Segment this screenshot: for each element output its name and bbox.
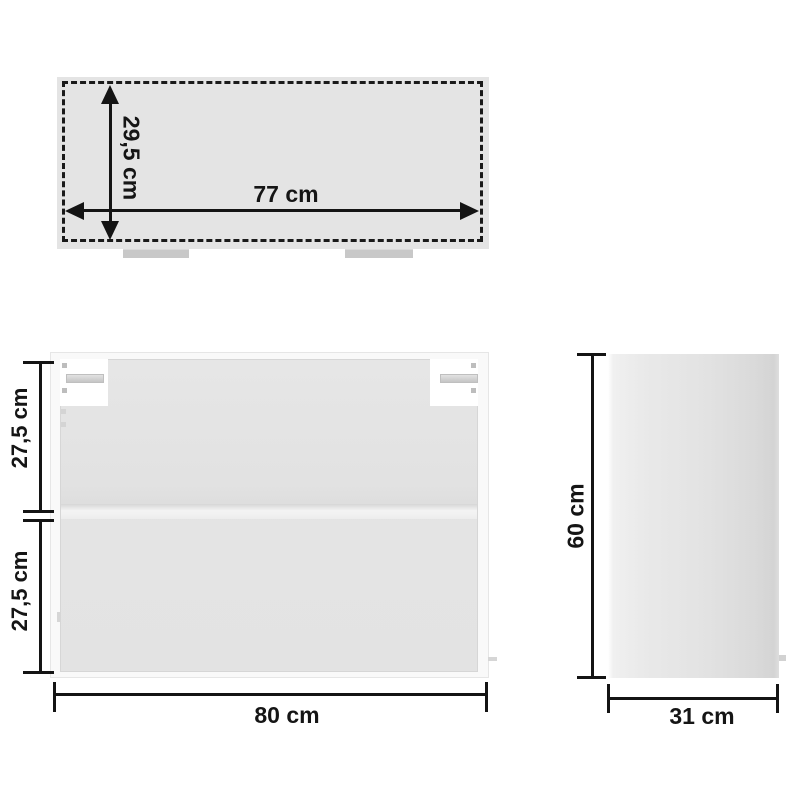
side-depth-label: 31 cm [669,705,734,728]
dim-tick [776,684,779,713]
cabinet-dimension-diagram: 29,5 cm 77 cm 27,5 cm 27,5 cm [0,0,800,800]
dim-line-side-height [591,354,594,678]
dim-line-side-depth [609,697,778,700]
side-height-label: 60 cm [565,483,588,548]
side-view: 60 cm 31 cm [0,0,800,800]
side-fitting-mark [779,655,786,661]
cabinet-side-panel [608,354,779,678]
dim-tick [577,676,606,679]
